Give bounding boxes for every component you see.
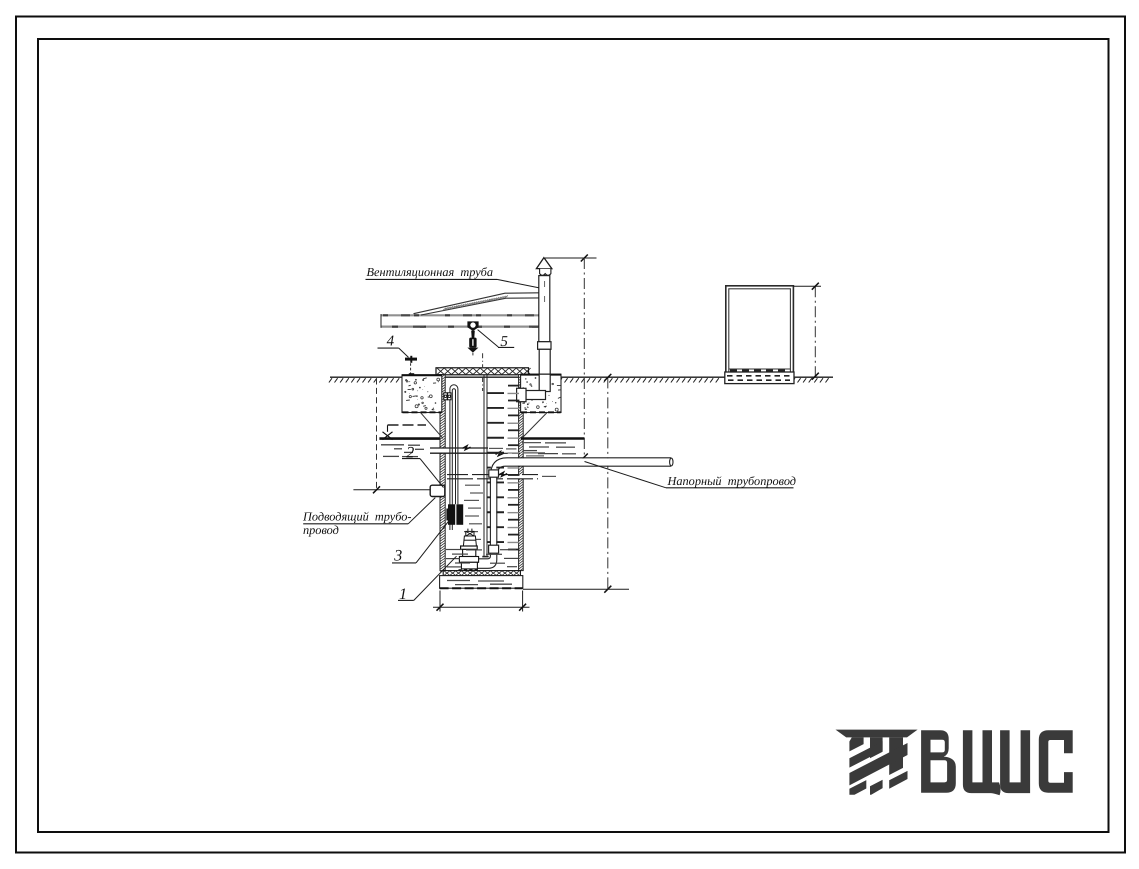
- svg-text:Вентиляционная труба: Вентиляционная труба: [367, 265, 494, 279]
- svg-text:3: 3: [393, 547, 402, 564]
- svg-text:Напорный трубопровод: Напорный трубопровод: [667, 474, 797, 488]
- svg-text:провод: провод: [303, 523, 339, 537]
- svg-text:4: 4: [387, 334, 395, 350]
- svg-text:Подводящий трубо-: Подводящий трубо-: [302, 510, 412, 524]
